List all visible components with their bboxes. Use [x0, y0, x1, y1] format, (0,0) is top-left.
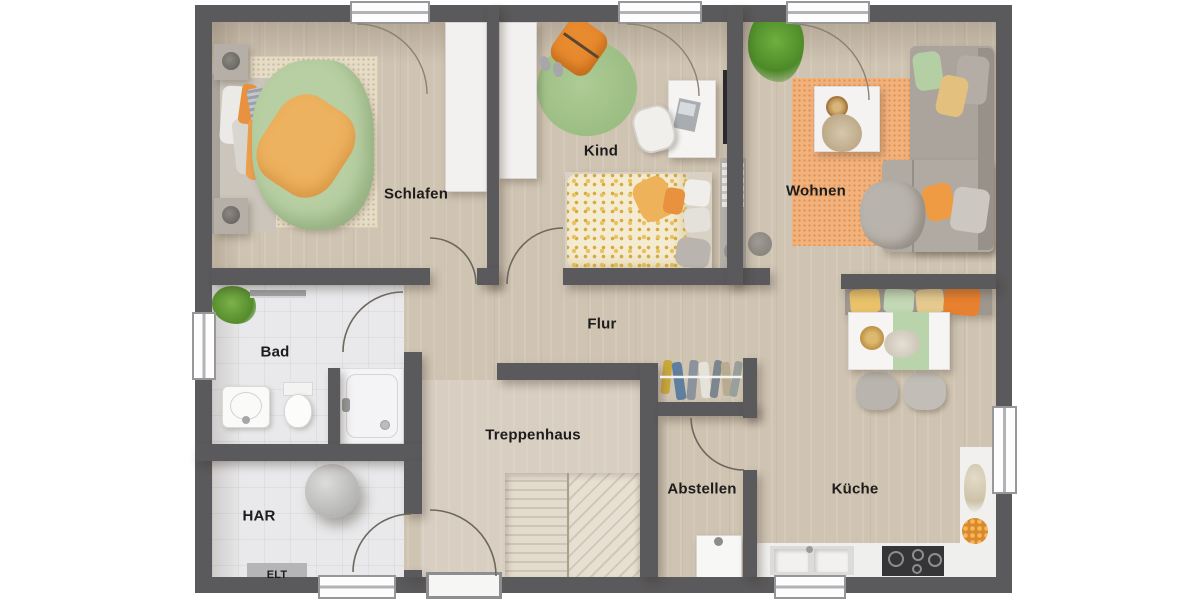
room-label-wohnen: Wohnen: [786, 183, 846, 200]
room-label-har: HAR: [242, 508, 275, 525]
wall-har-east: [404, 570, 422, 577]
burner: [912, 549, 924, 561]
room-label-kueche: Küche: [832, 481, 879, 498]
bench-pillow-mint: [883, 288, 915, 314]
wall-outer-right: [996, 492, 1012, 593]
wall-outer-top: [195, 5, 352, 22]
wall-har-east: [404, 461, 422, 514]
window: [618, 1, 702, 24]
wall-outer-left: [195, 5, 212, 315]
shower-partition: [328, 368, 340, 444]
shower-drain: [380, 420, 390, 430]
entrance-door: [426, 572, 502, 599]
room-label-bad: Bad: [261, 344, 290, 361]
wall-outer-top: [428, 5, 622, 22]
window: [192, 312, 216, 380]
wall-treppenhaus-east: [640, 363, 658, 577]
room-label-flur: Flur: [587, 316, 616, 333]
table-lamp: [222, 52, 240, 70]
dining-chair: [904, 372, 946, 410]
wall-schlafen-kind: [487, 5, 499, 285]
sink-basin: [774, 549, 808, 572]
bench-pillow-sand: [915, 288, 945, 315]
window: [318, 575, 396, 599]
stairs-left-flight: [505, 473, 569, 577]
wall-outer-top: [868, 5, 1012, 22]
pillow: [683, 207, 711, 233]
window: [786, 1, 870, 24]
room-label-abstellen: Abstellen: [667, 481, 736, 498]
boiler-tank: [305, 464, 359, 518]
grey-blanket: [674, 236, 712, 270]
dining-chair: [856, 372, 898, 410]
room-label-schlafen: Schlafen: [384, 186, 448, 203]
wardrobe: [445, 22, 487, 192]
shower-faucet: [342, 398, 350, 412]
shower-tray: [346, 374, 398, 438]
toilet-bowl: [284, 394, 312, 428]
stairs-right-flight: [569, 473, 642, 577]
wall-outer-bottom: [500, 577, 776, 593]
room-label-treppenhaus: Treppenhaus: [485, 427, 581, 444]
wall-bad-east: [404, 352, 422, 444]
window: [350, 1, 430, 24]
room-label-kind: Kind: [584, 143, 618, 160]
orange-bowl: [962, 518, 988, 544]
burner: [928, 553, 942, 567]
light-pillow: [949, 186, 991, 235]
pouf-stool: [748, 232, 772, 256]
washer-knob: [714, 537, 723, 546]
wardrobe: [499, 22, 537, 179]
wall-wohnen-south: [841, 274, 996, 289]
fruit-bowl: [860, 326, 884, 350]
pillow: [683, 179, 712, 208]
burner: [888, 551, 904, 567]
dried-plant: [822, 114, 862, 152]
wall-outer-bottom: [195, 577, 322, 593]
bench-pillow-yellow: [849, 288, 881, 315]
wall-outer-left: [195, 378, 212, 593]
wall-abstellen-east: [743, 358, 757, 418]
wall-outer-right: [996, 5, 1012, 408]
sink-basin: [814, 549, 848, 572]
window: [774, 575, 846, 599]
burner: [912, 564, 922, 574]
room-label-elt: ELT: [267, 569, 288, 581]
sink-faucet: [242, 416, 250, 424]
wall-bad-har: [195, 444, 422, 461]
wall-abstellen-east: [743, 470, 757, 577]
faucet: [806, 546, 813, 553]
stairs-divider: [567, 473, 569, 577]
wall-outer-bottom: [844, 577, 1012, 593]
wall-outer-top: [700, 5, 788, 22]
wall-kind-wohnen: [727, 5, 743, 285]
table-lamp: [222, 206, 240, 224]
floor-plan: Schlafen Kind Wohnen Bad Flur Treppenhau…: [0, 0, 1200, 600]
wall-schlafen-south: [212, 268, 430, 285]
towel-rail: [250, 290, 306, 298]
window: [992, 406, 1017, 494]
wall-outer-bottom: [394, 577, 428, 593]
wall-schlafen-south: [477, 268, 499, 285]
wall-treppenhaus-north: [497, 363, 644, 380]
